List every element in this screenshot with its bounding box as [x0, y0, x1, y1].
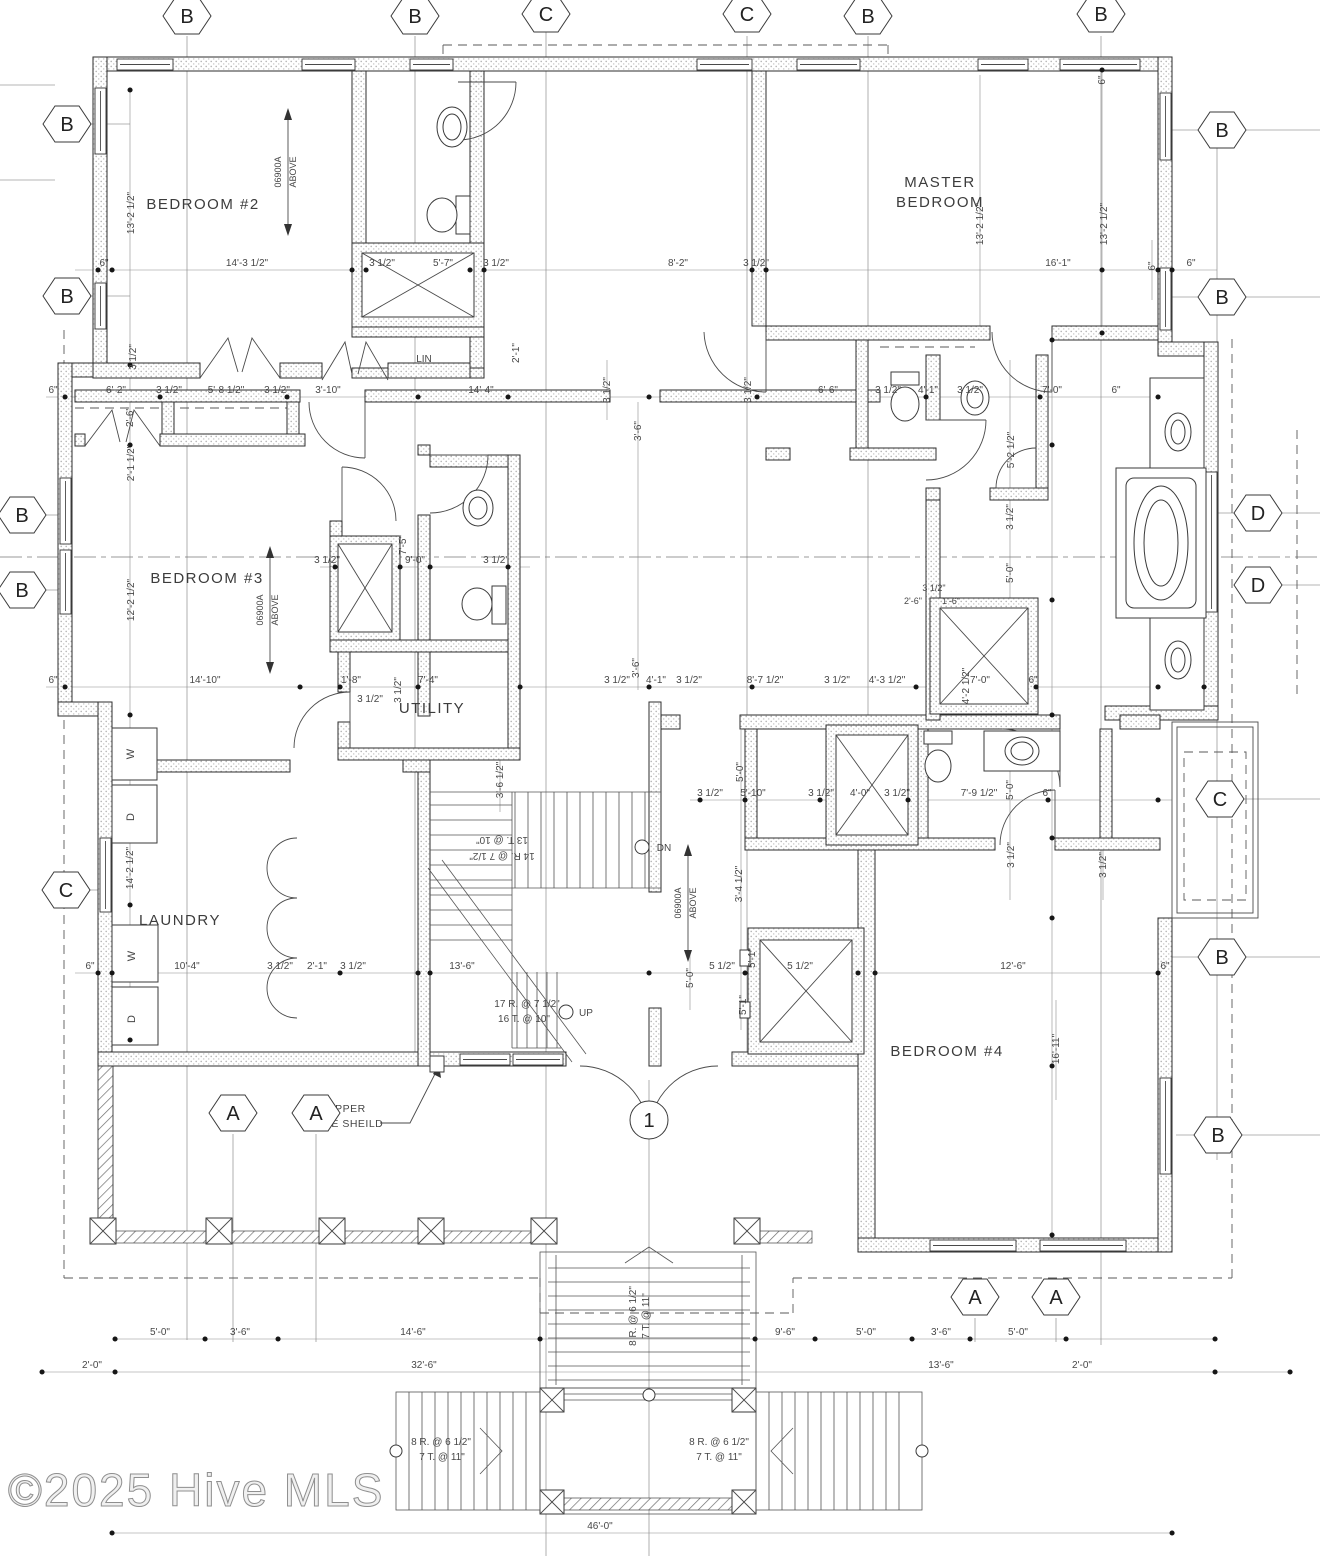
svg-text:13'-2 1/2": 13'-2 1/2" — [126, 191, 137, 234]
porch-side-wall — [98, 1066, 113, 1224]
shower-icon — [826, 725, 918, 845]
post-icon — [732, 1490, 756, 1514]
svg-text:3'-4 1/2": 3'-4 1/2" — [734, 865, 745, 902]
svg-text:14'-3 1/2": 14'-3 1/2" — [226, 258, 269, 269]
grid-marker-b: B — [0, 572, 46, 608]
door-arc — [342, 467, 396, 521]
post-icon — [732, 1388, 756, 1412]
svg-text:3 1/2": 3 1/2" — [697, 788, 723, 799]
svg-text:B: B — [861, 6, 874, 28]
svg-text:1'-6": 1'-6" — [942, 596, 960, 606]
chimney-icon — [740, 928, 864, 1054]
svg-text:3 1/2": 3 1/2" — [1006, 842, 1017, 868]
svg-text:7 T. @ 11": 7 T. @ 11" — [419, 1452, 465, 1463]
svg-text:5'-1": 5'-1" — [747, 948, 758, 968]
svg-text:C: C — [539, 4, 553, 26]
svg-text:4'-1": 4'-1" — [646, 675, 666, 686]
porch-and-steps — [90, 1066, 928, 1514]
svg-text:3 1/2": 3 1/2" — [808, 788, 834, 799]
svg-text:A: A — [1049, 1287, 1063, 1309]
tub-icon — [1116, 468, 1206, 618]
svg-text:3 1/2": 3 1/2" — [604, 675, 630, 686]
entry-number-marker: 1 — [630, 1101, 668, 1139]
svg-text:3 1/2": 3 1/2" — [922, 583, 945, 593]
svg-text:5'-0": 5'-0" — [856, 1327, 876, 1338]
svg-text:B: B — [15, 580, 28, 602]
svg-text:46'-0": 46'-0" — [587, 1521, 613, 1532]
svg-text:5'-0": 5'-0" — [685, 968, 696, 988]
svg-text:B: B — [180, 6, 193, 28]
svg-text:3 1/2": 3 1/2" — [264, 385, 290, 396]
dn-label: DN — [657, 843, 671, 854]
svg-text:14 R. @ 7 1/2": 14 R. @ 7 1/2" — [469, 850, 535, 861]
svg-text:B: B — [1215, 287, 1228, 309]
window-icon — [117, 59, 173, 70]
bifold-door-icon — [85, 410, 160, 446]
svg-text:8'-7 1/2": 8'-7 1/2" — [747, 675, 784, 686]
svg-text:ABOVE: ABOVE — [270, 594, 280, 625]
svg-text:3'-6": 3'-6" — [931, 1327, 951, 1338]
windows — [60, 59, 1217, 1251]
post-icon — [734, 1218, 760, 1244]
shower-icon — [330, 536, 400, 640]
svg-text:3 1/2": 3 1/2" — [314, 555, 340, 566]
svg-text:13 T. @ 10": 13 T. @ 10" — [476, 834, 528, 845]
svg-text:12'-6": 12'-6" — [1000, 961, 1026, 972]
deck-box — [1172, 722, 1258, 918]
svg-text:B: B — [1094, 4, 1107, 26]
svg-text:3 1/2": 3 1/2" — [743, 258, 769, 269]
svg-text:D: D — [125, 813, 137, 821]
window-icon — [1160, 1078, 1171, 1174]
svg-text:1: 1 — [643, 1110, 654, 1132]
svg-text:13'-2 1/2": 13'-2 1/2" — [975, 202, 986, 245]
window-icon — [1060, 59, 1140, 70]
svg-text:3 1/2": 3 1/2" — [743, 377, 754, 403]
grid-marker-b: B — [0, 497, 46, 533]
room-label-linen: LIN — [416, 354, 432, 365]
svg-text:3 1/2": 3 1/2" — [884, 788, 910, 799]
room-label-master-1: MASTER — [904, 174, 976, 191]
svg-text:B: B — [408, 6, 421, 28]
svg-text:6": 6" — [99, 258, 109, 269]
stair-notes: 14 R. @ 7 1/2" 13 T. @ 10" 17 R. @ 7 1/2… — [411, 834, 749, 1463]
toilet-icon — [462, 586, 506, 624]
svg-text:3 1/2": 3 1/2" — [357, 694, 383, 705]
svg-text:3 1/2": 3 1/2" — [957, 385, 983, 396]
svg-text:14'-2 1/2": 14'-2 1/2" — [125, 846, 136, 889]
svg-text:13'-6": 13'-6" — [449, 961, 475, 972]
svg-text:8 R. @ 6 1/2": 8 R. @ 6 1/2" — [689, 1437, 749, 1448]
window-icon — [978, 59, 1028, 70]
svg-text:10'-4": 10'-4" — [174, 961, 200, 972]
svg-text:W: W — [126, 950, 138, 961]
svg-text:7'-0": 7'-0" — [1042, 385, 1062, 396]
room-label-utility: UTILITY — [399, 700, 465, 717]
grid-marker-d: D — [1234, 567, 1282, 603]
svg-text:14'-6": 14'-6" — [400, 1327, 426, 1338]
post-icon — [531, 1218, 557, 1244]
shower-icon — [352, 243, 484, 327]
svg-text:B: B — [1215, 947, 1228, 969]
window-icon — [302, 59, 355, 70]
svg-text:B: B — [15, 505, 28, 527]
svg-text:7'-0": 7'-0" — [970, 675, 990, 686]
svg-text:B: B — [1211, 1125, 1224, 1147]
svg-text:3'-6": 3'-6" — [631, 658, 642, 678]
svg-text:2'-6": 2'-6" — [125, 407, 136, 427]
svg-text:6": 6" — [1186, 258, 1196, 269]
fixtures — [112, 107, 1206, 1054]
window-icon — [460, 1054, 510, 1065]
svg-text:3 1/2": 3 1/2" — [875, 385, 901, 396]
post-icon — [540, 1388, 564, 1412]
grid-marker-a: A — [1032, 1279, 1080, 1315]
svg-text:3 1/2": 3 1/2" — [393, 677, 404, 703]
post-icon — [540, 1490, 564, 1514]
svg-text:6": 6" — [85, 961, 95, 972]
grid-marker-c: C — [1196, 781, 1244, 817]
grid-marker-b: B — [43, 106, 91, 142]
post-icon — [206, 1218, 232, 1244]
window-icon — [1206, 472, 1217, 612]
window-icon — [697, 59, 752, 70]
svg-text:2'-1 1/2": 2'-1 1/2" — [126, 444, 137, 481]
grid-marker-b: B — [43, 278, 91, 314]
svg-text:3 1/2": 3 1/2" — [483, 555, 509, 566]
svg-text:14'-4": 14'-4" — [468, 385, 494, 396]
svg-text:2'-6": 2'-6" — [904, 596, 922, 606]
grid-marker-d: D — [1234, 495, 1282, 531]
svg-text:C: C — [1213, 789, 1227, 811]
svg-text:ABOVE: ABOVE — [688, 887, 698, 918]
svg-text:3 1/2": 3 1/2" — [1098, 852, 1109, 878]
window-icon — [797, 59, 860, 70]
svg-text:A: A — [309, 1103, 323, 1125]
svg-text:3 1/2": 3 1/2" — [156, 385, 182, 396]
grid-marker-c: C — [42, 872, 90, 908]
toilet-icon — [891, 372, 919, 421]
svg-text:W: W — [125, 748, 137, 759]
toilet-icon — [924, 731, 952, 782]
svg-text:2'-0": 2'-0" — [1072, 1360, 1092, 1371]
svg-text:8'-2": 8'-2" — [668, 258, 688, 269]
svg-text:6": 6" — [1160, 961, 1170, 972]
up-label: UP — [579, 1008, 593, 1019]
svg-text:17 R. @ 7 1/2": 17 R. @ 7 1/2" — [494, 999, 560, 1010]
room-label-bedroom2: BEDROOM #2 — [146, 196, 259, 213]
svg-text:3 1/2": 3 1/2" — [1005, 504, 1016, 530]
svg-text:7'-4": 7'-4" — [418, 675, 438, 686]
sink-icon — [463, 490, 493, 526]
svg-text:C: C — [740, 4, 754, 26]
grid-marker-b: B — [163, 0, 211, 34]
svg-text:5'-0": 5'-0" — [735, 762, 746, 782]
window-icon — [930, 1240, 1016, 1251]
grid-marker-b: B — [391, 0, 439, 34]
room-label-bedroom4: BEDROOM #4 — [890, 1043, 1003, 1060]
window-icon — [60, 478, 71, 544]
svg-text:4'-0": 4'-0" — [850, 788, 870, 799]
svg-text:3 1/2": 3 1/2" — [267, 961, 293, 972]
svg-text:3 1/2": 3 1/2" — [340, 961, 366, 972]
toilet-icon — [427, 196, 470, 234]
above-note-bedroom2: 06900A ABOVE — [273, 108, 298, 236]
door-arc — [267, 838, 297, 1018]
svg-text:5'-0": 5'-0" — [1005, 780, 1016, 800]
svg-text:6": 6" — [1097, 75, 1108, 85]
svg-text:13'-6": 13'-6" — [928, 1360, 954, 1371]
watermark: ©2025 Hive MLS — [8, 1464, 384, 1516]
svg-text:8 R. @ 6 1/2": 8 R. @ 6 1/2" — [628, 1286, 639, 1346]
svg-text:6'-6": 6'-6" — [818, 385, 838, 396]
shower-icon — [930, 598, 1038, 714]
svg-text:7 T. @ 11": 7 T. @ 11" — [641, 1293, 652, 1339]
svg-text:B: B — [60, 114, 73, 136]
svg-text:6": 6" — [1111, 385, 1121, 396]
svg-text:D: D — [126, 1015, 138, 1023]
svg-text:32'-6": 32'-6" — [411, 1360, 437, 1371]
post-icon — [90, 1218, 116, 1244]
svg-text:5'-0": 5'-0" — [1008, 1327, 1028, 1338]
svg-text:7'-9 1/2": 7'-9 1/2" — [961, 788, 998, 799]
svg-text:13'-2 1/2": 13'-2 1/2" — [1099, 202, 1110, 245]
svg-text:D: D — [1251, 575, 1265, 597]
room-label-bedroom3: BEDROOM #3 — [150, 570, 263, 587]
grid-marker-b: B — [844, 0, 892, 34]
svg-text:A: A — [968, 1287, 982, 1309]
svg-text:5'-1": 5'-1" — [738, 995, 749, 1015]
window-icon — [1160, 93, 1171, 160]
svg-text:3'-6": 3'-6" — [230, 1327, 250, 1338]
svg-text:7 T. @ 11": 7 T. @ 11" — [696, 1452, 742, 1463]
svg-text:3 1/2": 3 1/2" — [602, 377, 613, 403]
sink-icon — [1165, 641, 1191, 679]
svg-text:16'-11": 16'-11" — [1051, 1033, 1062, 1064]
bifold-door-icon — [200, 338, 280, 378]
grid-marker-c: C — [522, 0, 570, 32]
svg-text:6": 6" — [1028, 675, 1038, 686]
svg-text:6": 6" — [1042, 788, 1052, 799]
svg-text:9'-0": 9'-0" — [405, 555, 425, 566]
svg-text:3 1/2": 3 1/2" — [824, 675, 850, 686]
svg-text:5'-2 1/2": 5'-2 1/2" — [1006, 431, 1017, 468]
svg-text:6": 6" — [1147, 261, 1158, 271]
floor-plan-page: 06900A ABOVE 06900A ABOVE 06900A ABOVE C… — [0, 0, 1320, 1557]
window-icon — [513, 1054, 563, 1065]
svg-text:06900A: 06900A — [273, 156, 283, 187]
svg-text:12'-2 1/2": 12'-2 1/2" — [126, 578, 137, 621]
grid-marker-c: C — [723, 0, 771, 32]
grid-marker-a: A — [209, 1095, 257, 1131]
window-icon — [95, 88, 106, 154]
landing-posts — [540, 1388, 756, 1514]
floor-plan-drawing: 06900A ABOVE 06900A ABOVE 06900A ABOVE C… — [0, 0, 1320, 1557]
svg-text:C: C — [59, 880, 73, 902]
sink-icon — [1005, 737, 1039, 765]
above-note-bedroom3: 06900A ABOVE — [255, 546, 280, 674]
svg-text:5 1/2": 5 1/2" — [787, 961, 813, 972]
door-arc — [309, 402, 365, 458]
window-icon — [1160, 268, 1171, 330]
svg-text:16 T. @ 10": 16 T. @ 10" — [498, 1014, 550, 1025]
svg-text:14'-10": 14'-10" — [189, 675, 220, 686]
svg-text:1'-8": 1'-8" — [341, 675, 361, 686]
grid-marker-a: A — [951, 1279, 999, 1315]
svg-text:5'-8 1/2": 5'-8 1/2" — [208, 385, 245, 396]
grid-marker-b: B — [1077, 0, 1125, 32]
grid-marker-b: B — [1198, 279, 1246, 315]
svg-text:3 1/2": 3 1/2" — [369, 258, 395, 269]
svg-text:6": 6" — [48, 675, 58, 686]
svg-text:6": 6" — [48, 385, 58, 396]
post-icon — [418, 1218, 444, 1244]
post-icon — [319, 1218, 345, 1244]
svg-text:2'-0": 2'-0" — [82, 1360, 102, 1371]
svg-text:06900A: 06900A — [255, 594, 265, 625]
svg-text:5 1/2": 5 1/2" — [709, 961, 735, 972]
svg-text:ABOVE: ABOVE — [288, 156, 298, 187]
room-label-master-2: BEDROOM — [896, 194, 984, 211]
svg-text:9'-6": 9'-6" — [775, 1327, 795, 1338]
svg-text:06900A: 06900A — [673, 887, 683, 918]
window-icon — [60, 550, 71, 614]
svg-text:3 1/2": 3 1/2" — [676, 675, 702, 686]
svg-text:6'-2": 6'-2" — [106, 385, 126, 396]
door-arc — [704, 332, 766, 392]
grid-marker-b: B — [1198, 112, 1246, 148]
svg-text:3'-6 1/2": 3'-6 1/2" — [495, 761, 506, 798]
svg-text:3'-10": 3'-10" — [315, 385, 341, 396]
svg-text:D: D — [1251, 503, 1265, 525]
svg-text:B: B — [60, 286, 73, 308]
svg-text:4'-2 1/2": 4'-2 1/2" — [961, 667, 972, 704]
svg-text:3 1/2": 3 1/2" — [483, 258, 509, 269]
svg-text:B: B — [1215, 120, 1228, 142]
grid-marker-b: B — [1198, 939, 1246, 975]
svg-text:3 1/2": 3 1/2" — [128, 344, 139, 370]
room-label-laundry: LAUNDRY — [139, 912, 221, 929]
svg-text:8 R. @ 6 1/2": 8 R. @ 6 1/2" — [411, 1437, 471, 1448]
window-icon — [95, 283, 106, 329]
window-icon — [1040, 1240, 1126, 1251]
above-note-hall: 06900A ABOVE — [673, 844, 698, 962]
grid-marker-b: B — [1194, 1117, 1242, 1153]
sink-icon — [1165, 413, 1191, 451]
svg-text:2'-1": 2'-1" — [511, 343, 522, 363]
svg-text:3'-6": 3'-6" — [633, 421, 644, 441]
svg-text:7'-5": 7'-5" — [398, 535, 409, 555]
svg-text:5'-7": 5'-7" — [433, 258, 453, 269]
window-icon — [100, 838, 111, 912]
svg-text:16'-1": 16'-1" — [1045, 258, 1071, 269]
svg-text:4'-3 1/2": 4'-3 1/2" — [869, 675, 906, 686]
svg-text:5'-0": 5'-0" — [1005, 563, 1016, 583]
svg-text:A: A — [226, 1103, 240, 1125]
dimension-texts: 6" 14'-3 1/2" 3 1/2" 5'-7" 3 1/2" 8'-2" … — [48, 75, 1196, 1532]
svg-text:5'-10": 5'-10" — [740, 788, 766, 799]
svg-text:5'-0": 5'-0" — [150, 1327, 170, 1338]
doors — [85, 82, 1060, 1135]
window-icon — [410, 59, 453, 70]
svg-text:4'-1": 4'-1" — [918, 385, 938, 396]
sink-icon — [437, 107, 467, 147]
svg-text:2'-1": 2'-1" — [307, 961, 327, 972]
